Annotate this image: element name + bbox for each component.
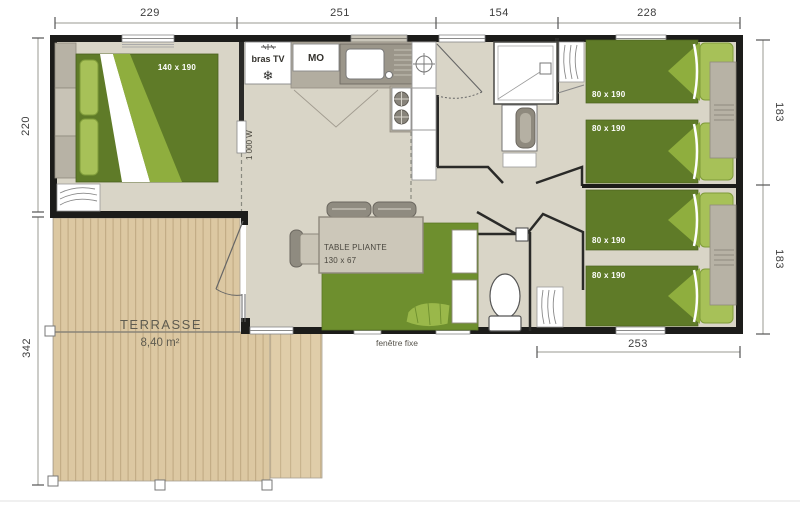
pillow	[80, 119, 98, 175]
master-bed-size-label: 140 x 190	[158, 63, 197, 72]
dining-chair-left	[290, 230, 321, 267]
sink-faucet	[386, 72, 393, 79]
terrace-upper-deck	[53, 218, 240, 332]
floor-plan-page: TERRASSE 8,40 m²	[0, 0, 800, 506]
dim-left-1: 220	[20, 116, 32, 136]
terrace-area-label: 8,40 m²	[141, 337, 180, 349]
toilet-base	[489, 316, 521, 331]
pillow	[80, 60, 98, 115]
wardrobe	[55, 43, 76, 88]
bed-size-label: 80 x 190	[592, 271, 626, 280]
dim-top-3: 154	[489, 7, 509, 19]
microwave-label: MO	[308, 53, 324, 64]
nightstand	[710, 205, 736, 305]
microwave: MO	[293, 44, 339, 71]
window-shower-top	[439, 35, 485, 42]
curtain-window-master	[57, 184, 100, 211]
vanity-washbasin	[502, 105, 537, 151]
dim-top-1: 229	[140, 7, 160, 19]
sink-basin	[346, 49, 384, 79]
shelf-unit	[452, 230, 477, 273]
terrace-lower-deck	[53, 332, 270, 481]
wall-master-east	[239, 42, 244, 123]
shower-threshold	[503, 153, 536, 167]
folding-table: TABLE PLIANTE 130 x 67	[319, 217, 423, 273]
table-label-line2: 130 x 67	[324, 256, 357, 265]
terrace-name-label: TERRASSE	[120, 317, 202, 332]
wc-door-jamb	[516, 228, 528, 241]
hob-unit	[390, 86, 413, 132]
shower-drain	[540, 63, 551, 74]
window-living-bottom-1	[250, 327, 293, 334]
terrace-side-deck	[270, 333, 322, 478]
fixed-window-label: fenêtre fixe	[376, 338, 418, 348]
bed-size-label: 80 x 190	[592, 90, 626, 99]
wc	[489, 274, 521, 331]
wall-master-bottom	[50, 211, 248, 218]
tall-cabinet	[412, 42, 436, 180]
curtain-window-bedroom-top	[559, 42, 584, 82]
terrace-post	[155, 480, 165, 490]
dim-top-4: 228	[637, 7, 657, 19]
snowflake-icon: ❄	[263, 68, 274, 83]
bed-size-label: 80 x 190	[592, 236, 626, 245]
dining-chair-top	[327, 202, 371, 217]
terrace-post	[262, 480, 272, 490]
wardrobe	[55, 88, 76, 136]
wall-bedroom-divider	[582, 184, 740, 188]
dim-bottom-1: 253	[628, 338, 648, 350]
curtain-window-bedroom-bottom	[537, 287, 563, 327]
double-bed: 140 x 190	[76, 54, 218, 182]
dim-top-2: 251	[330, 7, 350, 19]
fridge-tv-unit: bras TV ❄	[245, 42, 291, 84]
dim-right-2: 183	[773, 249, 785, 269]
dining-chair-top	[373, 202, 416, 217]
terrace-post	[48, 476, 58, 486]
tv-bracket-label: bras TV	[251, 54, 284, 64]
window-kitchen-top	[351, 35, 407, 42]
window-bedroom-bottom	[616, 327, 665, 334]
table-label-line1: TABLE PLIANTE	[324, 243, 387, 252]
nightstand	[710, 62, 736, 158]
basin	[520, 113, 531, 143]
heater-power-label: 1 000 W	[245, 130, 254, 160]
shelf-unit	[452, 280, 477, 323]
toilet-bowl	[490, 274, 520, 318]
terrace-post	[45, 326, 55, 336]
dim-left-2: 342	[21, 338, 33, 358]
floor-plan: TERRASSE 8,40 m²	[0, 0, 800, 506]
shower-cabin	[494, 42, 557, 104]
wardrobe	[55, 136, 76, 178]
bed-size-label: 80 x 190	[592, 124, 626, 133]
dim-right-1: 183	[773, 102, 785, 122]
